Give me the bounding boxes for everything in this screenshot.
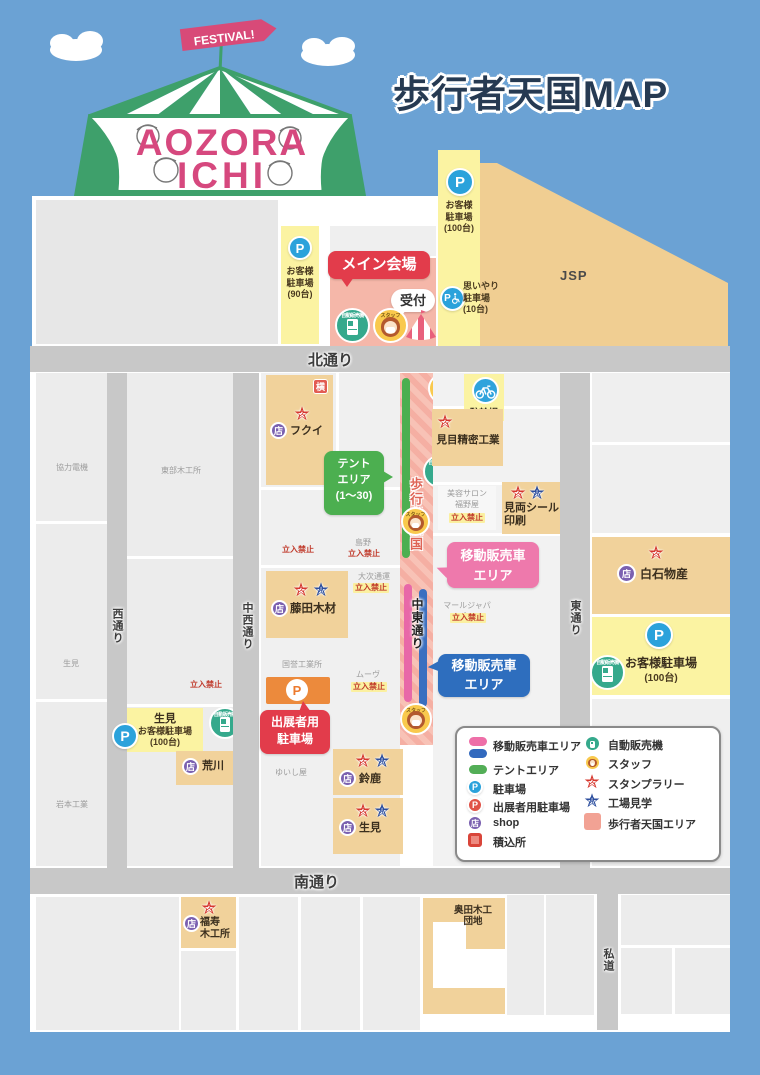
staff-icon: スタッフ (401, 507, 430, 536)
exhibitor-parking-icon: P (286, 679, 308, 701)
road-private-label: 私道 (600, 948, 616, 972)
block (621, 895, 730, 945)
building-jsp-label: JSP (560, 268, 620, 283)
block (36, 524, 107, 699)
legend-loading: 積込所 (493, 834, 526, 850)
parking-top-100-label: お客様 駐車場 (100台) (438, 200, 480, 235)
shop-icon: 店 (182, 758, 199, 775)
building-iwamoto-label: 岩本工業 (50, 800, 94, 810)
legend-pedestrian-area: 歩行者天国エリア (608, 816, 696, 832)
wheelchair-icon (451, 292, 461, 305)
block (621, 948, 672, 1014)
staff-icon: スタッフ (400, 703, 432, 735)
building-daiji-label: 大次通運 (355, 572, 393, 582)
road-south (30, 868, 730, 894)
legend-tent-area: テントエリア (493, 762, 559, 778)
legend-pill-pink (469, 737, 487, 746)
legend-staff: スタッフ (608, 756, 652, 772)
block (546, 895, 594, 1015)
stamp-rally-star-icon: ★★ス (200, 899, 218, 917)
shop-icon: 店 (183, 915, 200, 932)
block (363, 897, 420, 1030)
keep-out-label: 立入禁止 (449, 513, 485, 523)
building-okuda (423, 988, 505, 1014)
shop-icon: 店 (339, 770, 356, 787)
legend-stamp-rally: スタンプラリー (608, 776, 685, 792)
block-divider (127, 704, 233, 707)
festival-flag: FESTIVAL! (180, 18, 278, 52)
building-arakawa-label: 荒川 (202, 760, 224, 773)
vending-machine-icon: 自動販売機 (335, 308, 370, 343)
stamp-rally-star-icon: ★★ス (647, 544, 665, 562)
vending-machine-icon: 自動販売機 (590, 655, 625, 690)
tent-area-bubble-tail (383, 471, 393, 483)
building-muv-label: ムーヴ (353, 670, 383, 680)
shop-icon: 店 (271, 600, 288, 617)
building-shimano-label: 島野 (350, 538, 376, 548)
parking-right-cap: (100台) (637, 669, 685, 684)
block (239, 897, 298, 1030)
legend-mobile-vendor: 移動販売車エリア (493, 738, 581, 754)
building-fukuju-label: 福寿 木工所 (200, 917, 230, 941)
legend-shop: shop (493, 817, 519, 829)
block-divider (592, 442, 730, 445)
stamp-rally-star-icon: ★★ス (293, 405, 311, 423)
road-north-label: 北通り (308, 349, 353, 370)
shop-icon: 店 (617, 564, 636, 583)
exhibitor-parking-bubble: 出展者用 駐車場 (260, 710, 330, 754)
parking-icon: P (288, 236, 312, 260)
block (127, 373, 233, 866)
legend-factory-star-icon: ★★見 (583, 792, 601, 810)
road-mid-east-label: 中東通り (409, 598, 426, 650)
building-kokuyo-label: 国誉工業所 (274, 660, 330, 670)
keep-out-label: 立入禁止 (282, 545, 314, 555)
block (507, 895, 544, 1015)
keep-out-label: 立入禁止 (190, 680, 222, 690)
road-south-label: 南通り (294, 871, 339, 892)
page-title: 歩行者天国MAP (393, 64, 733, 118)
block (36, 897, 179, 1030)
main-venue-bubble-tail (340, 277, 354, 287)
mobile-vendor-blue-tail (427, 661, 441, 674)
road-east-label: 東通り (567, 600, 583, 636)
parking-ikemi-cap: (100台) (140, 735, 190, 748)
staff-icon: スタッフ (373, 308, 408, 343)
block-divider (261, 565, 400, 568)
factory-tour-star-icon: ★★見 (373, 752, 391, 770)
building-shiraishi-label: 白石物産 (640, 567, 688, 581)
building-suzuka-label: 鈴鹿 (359, 773, 381, 786)
road-north (30, 346, 730, 372)
building-fujita-label: 藤田木材 (290, 603, 336, 617)
legend-loading-icon (468, 833, 482, 847)
block (301, 897, 360, 1030)
building-yuishiya-label: ゆいし屋 (272, 768, 310, 778)
festival-logo: FESTIVAL! AOZORA ICHI (28, 10, 388, 210)
parking-icon: P (446, 168, 474, 196)
block-top-left (36, 200, 278, 344)
parking-left-90-label: お客様 駐車場 (90台) (281, 266, 319, 301)
mobile-vendor-bubble-blue: 移動販売車 エリア (438, 654, 530, 697)
logo-line2: ICHI (177, 155, 267, 196)
building-ikemi-small-label: 生見 (58, 659, 84, 669)
stamp-rally-star-icon: ★★ス (436, 413, 454, 431)
building-jsp (480, 163, 728, 346)
block-right-top (592, 373, 730, 533)
parking-icon: P (112, 723, 138, 749)
legend-exhibitor-parking-icon: P (467, 797, 483, 813)
shop-icon: 店 (339, 819, 356, 836)
keep-out-label: 立入禁止 (351, 682, 387, 692)
main-venue-bubble: メイン会場 (328, 251, 430, 279)
building-fukui-label: フクイ (290, 425, 323, 438)
block (36, 702, 107, 866)
tent-roof (90, 68, 350, 116)
legend-parking-icon: P (467, 779, 483, 795)
stamp-rally-star-icon: ★★ス (292, 581, 310, 599)
legend-stamp-star-icon: ★★ス (583, 773, 601, 791)
stamp-rally-star-icon: ★★ス (509, 484, 527, 502)
festival-map: FESTIVAL! AOZORA ICHI 歩行者天国MAP P お客様 駐車場 (0, 0, 760, 1075)
road-mid-west-label: 中西通り (239, 602, 255, 650)
building-tobu-label: 東部木工所 (155, 466, 207, 476)
block (181, 951, 236, 1030)
legend-vending-icon (584, 735, 601, 752)
building-memi-label: 見目精密工業 (433, 434, 503, 447)
bicycle-icon (472, 377, 499, 404)
stamp-rally-star-icon: ★★ス (354, 802, 372, 820)
legend-pedestrian-icon (584, 813, 601, 830)
tent-icon (405, 310, 437, 342)
keep-out-label: 立入禁止 (348, 549, 380, 559)
legend-exhibitor-parking: 出展者用駐車場 (493, 799, 570, 815)
road-west-label: 西通り (109, 608, 125, 644)
mobile-vendor-pink-tail (435, 565, 449, 578)
mobile-vendor-bubble-pink: 移動販売車 エリア (447, 542, 539, 588)
block (36, 373, 107, 521)
keep-out-label: 立入禁止 (450, 613, 486, 623)
shop-icon: 店 (270, 422, 287, 439)
building-kyoryoku-label: 協力電機 (52, 463, 92, 473)
keep-out-label: 立入禁止 (353, 583, 389, 593)
accessible-parking-icon: P (440, 286, 465, 311)
factory-tour-star-icon: ★★見 (528, 484, 546, 502)
building-okuda (423, 922, 433, 988)
parking-icon: P (645, 621, 673, 649)
legend-pill-green (469, 765, 487, 774)
legend-parking: 駐車場 (493, 781, 526, 797)
legend-staff-icon (584, 754, 601, 771)
building-fukunoya-label: 福野屋 (452, 500, 482, 510)
legend-factory-tour: 工場見学 (608, 795, 652, 811)
legend-pill-blue (469, 749, 487, 758)
legend-vending: 自動販売機 (608, 737, 663, 753)
building-salon-label: 美容サロン (444, 489, 490, 499)
building-okuda-label: 奥田木工 団地 (448, 905, 498, 928)
factory-tour-star-icon: ★★見 (312, 581, 330, 599)
building-ikemi-shop-label: 生見 (359, 822, 381, 835)
block (675, 948, 730, 1014)
parking-omoiyari-label: 思いやり 駐車場 (10台) (463, 281, 513, 316)
stamp-rally-star-icon: ★★ス (354, 752, 372, 770)
building-miryo-label: 見両シール 印刷 (504, 502, 559, 528)
legend-shop-icon: 店 (467, 815, 483, 831)
loading-area-icon: 横 (313, 379, 328, 394)
factory-tour-star-icon: ★★見 (373, 802, 391, 820)
tent-area-bubble: テント エリア (1〜30) (324, 451, 384, 515)
block-divider (127, 556, 233, 559)
